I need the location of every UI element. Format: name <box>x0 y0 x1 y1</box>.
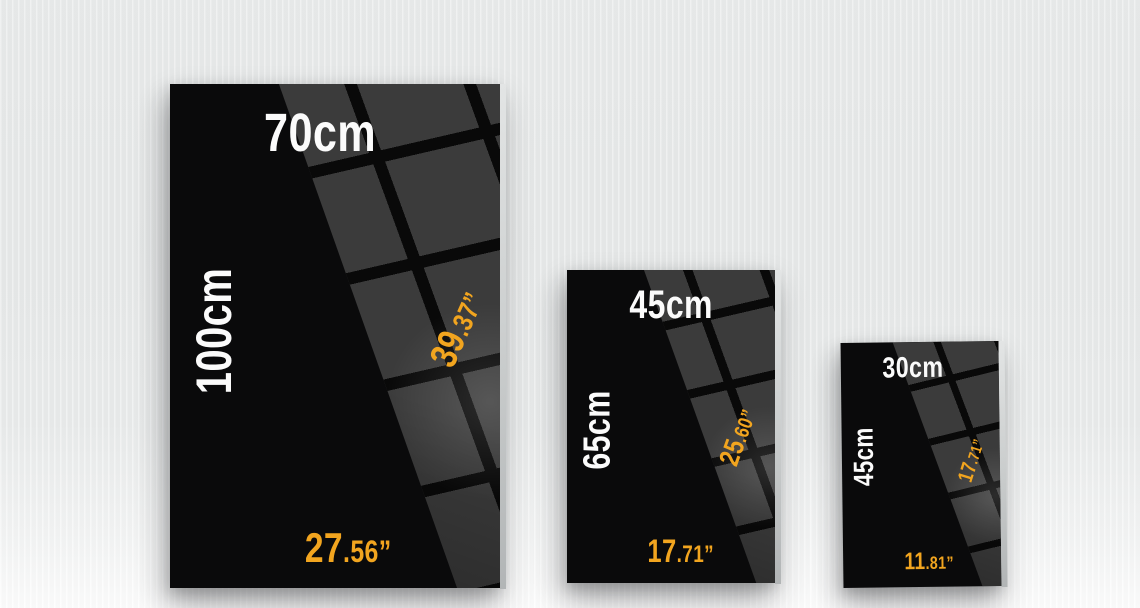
inches-main: 11 <box>904 548 925 575</box>
inches-frac: .71” <box>677 542 714 568</box>
inches-main: 17 <box>648 533 677 569</box>
width-inches-label: 27.56” <box>183 524 513 572</box>
width-cm-text: 45cm <box>629 285 712 325</box>
inches-frac: .56” <box>343 534 392 569</box>
width-inches-text: 27.56” <box>305 527 392 569</box>
inches-frac: .81” <box>925 553 954 573</box>
width-inches-text: 17.71” <box>648 535 715 568</box>
panel-65x45cm: 45cm 65cm 25.60” 17.71” <box>567 270 775 583</box>
width-inches-text: 11.81” <box>904 550 954 575</box>
width-inches-label: 17.71” <box>577 533 785 570</box>
height-cm-label: 45cm <box>847 420 880 494</box>
panel-100x70cm: 70cm 100cm 39.37” 27.56” <box>170 84 500 588</box>
height-cm-label: 65cm <box>577 380 620 479</box>
width-inches-label: 11.81” <box>850 547 1008 577</box>
canvas-size-comparison: 70cm 100cm 39.37” 27.56” 45cm 65cm 25.60… <box>0 0 1140 608</box>
width-cm-text: 70cm <box>264 106 376 160</box>
height-cm-text: 65cm <box>579 390 617 469</box>
width-cm-label: 70cm <box>155 102 485 164</box>
width-cm-label: 30cm <box>834 351 992 386</box>
width-cm-text: 30cm <box>882 354 943 384</box>
height-cm-label: 100cm <box>185 252 243 410</box>
height-cm-text: 45cm <box>850 427 879 486</box>
height-cm-text: 100cm <box>189 268 239 395</box>
panel-45x30cm: 30cm 45cm 17.71” 11.81” <box>841 341 1002 588</box>
inches-main: 27 <box>305 524 343 571</box>
width-cm-label: 45cm <box>567 283 775 328</box>
